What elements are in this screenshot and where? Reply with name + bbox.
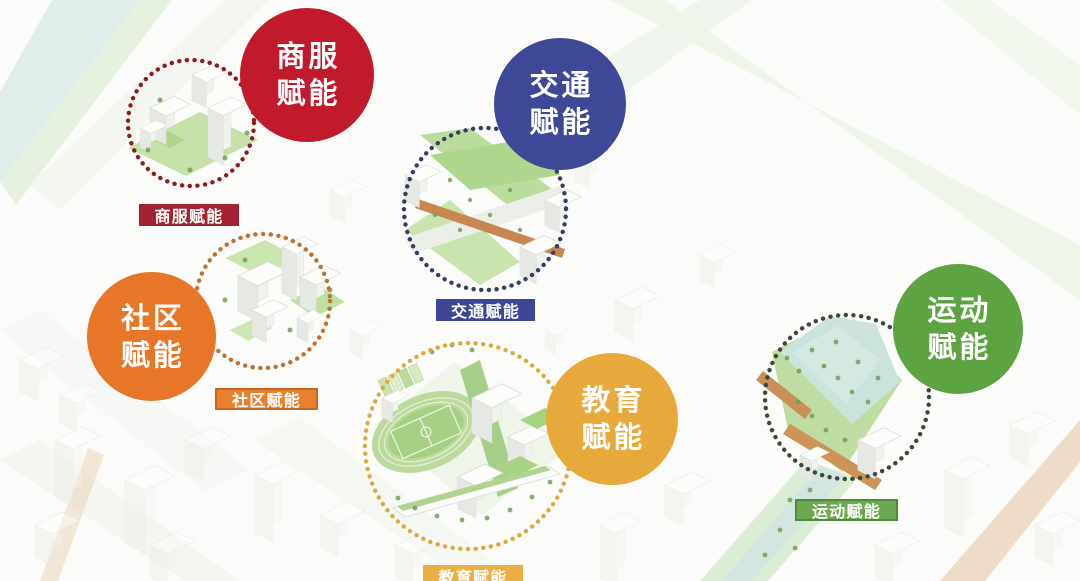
bubble-community: 社区 赋能 [87,272,216,401]
bubble-education: 教育 赋能 [546,353,678,485]
bubble-label-line2: 赋能 [527,104,594,141]
tag-education: 教育赋能 [423,565,523,581]
tag-sports: 运动赋能 [795,499,898,521]
bubble-label-line2: 赋能 [274,75,341,112]
bubble-sports: 运动 赋能 [893,264,1023,394]
bubble-commerce-service: 商服 赋能 [240,8,374,142]
bubble-label-line2: 赋能 [579,419,646,456]
bubble-label-line1: 运动 [925,292,992,329]
masterplan-diagram: 商服 赋能 交通 赋能 社区 赋能 教育 赋能 运动 赋能 商服赋能 交通赋能 … [0,0,1080,581]
bubble-label-line1: 交通 [527,67,594,104]
tag-commerce-service: 商服赋能 [139,204,239,226]
bubble-label-line2: 赋能 [118,337,185,374]
bubble-label-line1: 教育 [579,382,646,419]
bubble-label-line1: 社区 [118,300,185,337]
bubble-label-line2: 赋能 [925,329,992,366]
bubble-traffic: 交通 赋能 [494,38,626,170]
tag-traffic: 交通赋能 [436,299,535,321]
bubble-label-line1: 商服 [274,38,341,75]
tag-community: 社区赋能 [215,388,318,410]
